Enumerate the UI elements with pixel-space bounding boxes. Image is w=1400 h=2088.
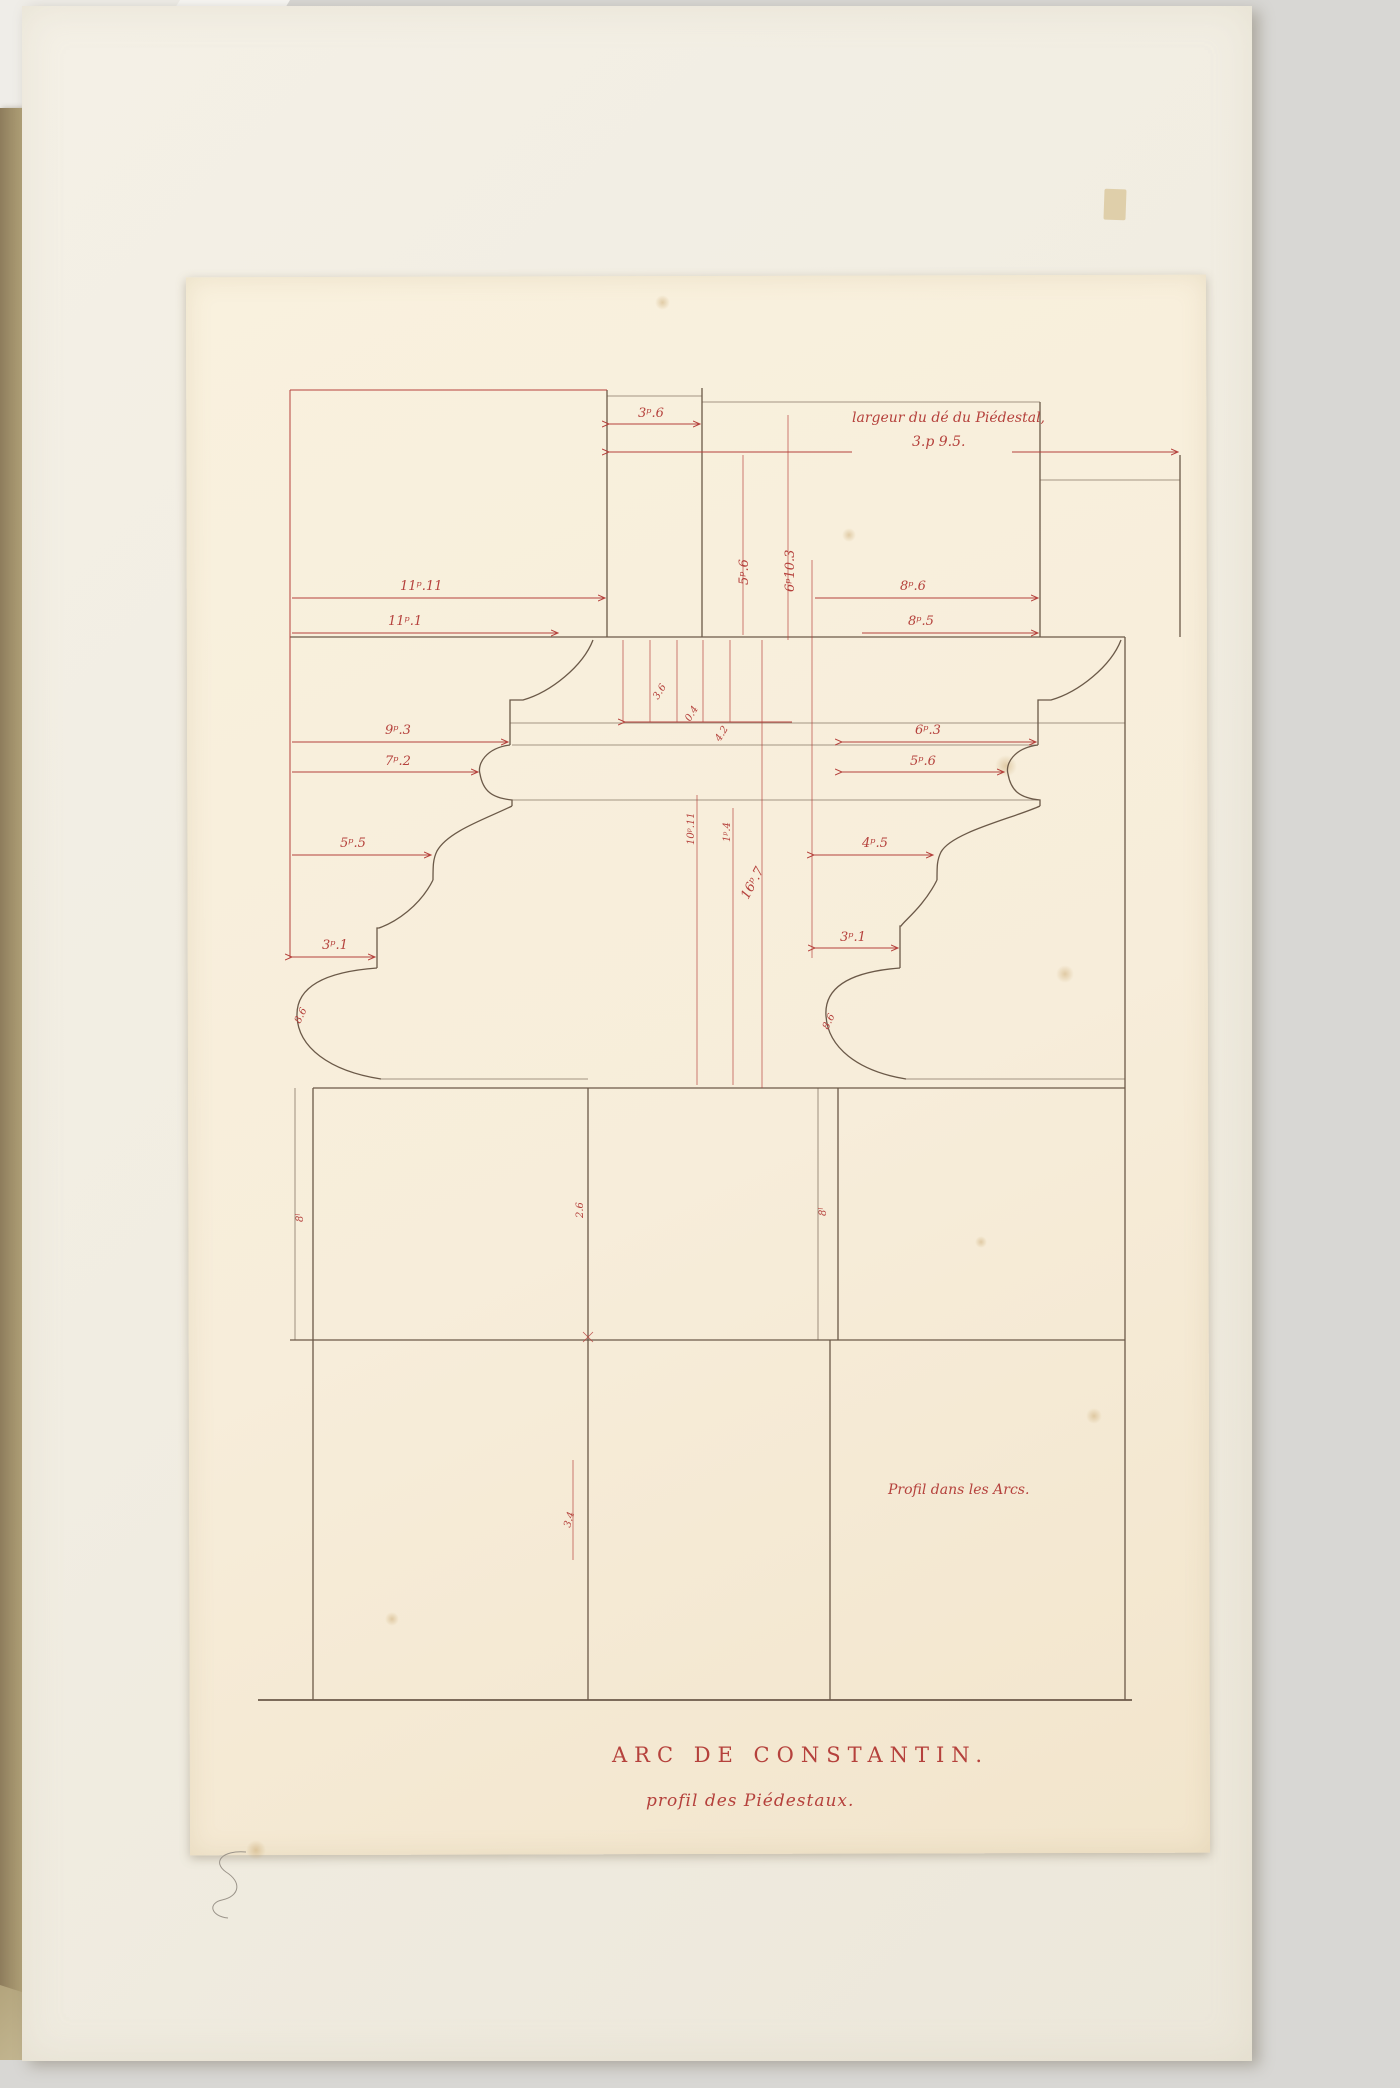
dim-shaft-height: 5ᵖ.6 [737,559,752,585]
dim-torus-right: 5ᵖ.6 [910,754,936,769]
dim-step-right: 3ᵖ.1 [840,930,866,945]
dim-cornice-left: 11ᵖ.11 [400,579,442,594]
dim-joint-center: 3.4 [562,1511,577,1529]
pedestal-profile-drawing: 3ᵖ.6 largeur du dé du Piédestal, 3.p 9.5… [0,0,1400,2088]
dim-fillet-left: 9ᵖ.3 [385,723,411,738]
dim-die-right: 8ˡ [818,1207,829,1216]
note-die-width-1: largeur du dé du Piédestal, [852,410,1045,426]
dim-mid-3: 16ᵖ.7 [738,864,768,902]
dim-base-height: 6ᵖ10.3 [783,550,798,592]
scanned-plate: 3ᵖ.6 largeur du dé du Piédestal, 3.p 9.5… [0,0,1400,2088]
dimension-labels: 3ᵖ.6 largeur du dé du Piédestal, 3.p 9.5… [293,406,1045,1529]
dim-torus-height-left: 8.6 [293,1006,310,1026]
dim-die-left: 8ˡ [295,1213,306,1222]
dim-mid-2: 1ᵖ.4 [722,822,733,842]
dim-mid-1: 10ᵖ.11 [686,812,697,845]
dim-cap-1: 3.6 [651,682,669,702]
dark-profile-lines [258,388,1180,1700]
dim-width-upper: 3ᵖ.6 [638,406,664,421]
plate-subtitle: profil des Piédestaux. [646,1791,854,1811]
dim-cornice-right: 8ᵖ.6 [900,579,926,594]
note-profil-arcs: Profil dans les Arcs. [887,1482,1029,1498]
red-dimension-lines [290,390,1178,1560]
note-die-width-2: 3.p 9.5. [912,434,965,450]
plate-titles: ARC DE CONSTANTIN. profil des Piédestaux… [611,1743,989,1811]
page-curl-mark [213,1852,246,1918]
plate-title: ARC DE CONSTANTIN. [611,1743,989,1767]
dim-torus-left: 7ᵖ.2 [385,754,411,769]
dim-cyma-right: 4ᵖ.5 [861,836,888,851]
dim-step-left: 3ᵖ.1 [322,938,348,953]
dim-cornice2-left: 11ᵖ.1 [388,614,422,629]
dim-cap-2: 0.4 [683,704,701,723]
dim-torus-height-right: 8.6 [821,1012,838,1032]
dim-cyma-left: 5ᵖ.5 [340,836,366,851]
dim-die-center: 2.6 [575,1201,586,1219]
dim-cap-3: 4.2 [713,724,731,744]
dim-cornice2-right: 8ᵖ.5 [908,614,934,629]
dim-fillet-right: 6ᵖ.3 [915,723,941,738]
